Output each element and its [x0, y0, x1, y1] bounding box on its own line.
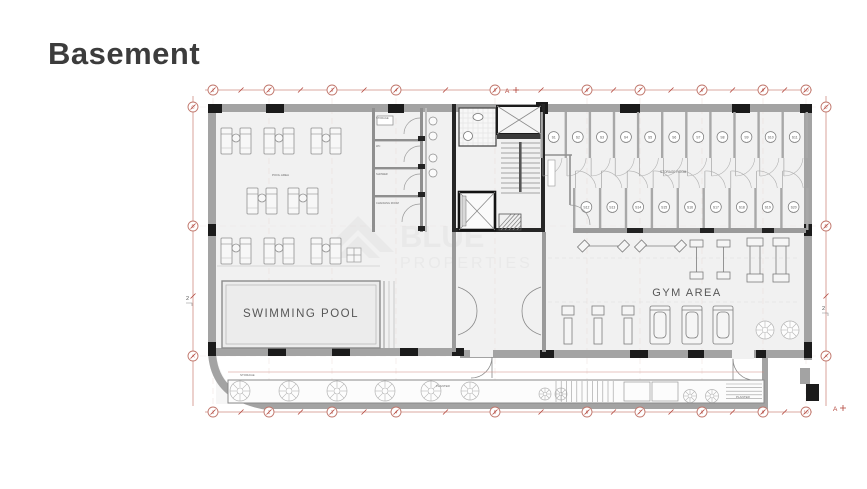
storage-unit-number: S19 — [765, 205, 771, 209]
storage-room-label: STORAGE ROOM — [660, 170, 687, 174]
gym-area-label: GYM AREA — [652, 287, 721, 299]
plant-icon — [706, 390, 719, 403]
storage-unit-number: S17 — [713, 205, 719, 209]
room-label-changing: CHANGING ROOM — [376, 201, 399, 205]
plant-icon — [684, 390, 697, 403]
core-bathroom — [459, 108, 496, 146]
planter-label-left: PLANTER — [436, 384, 451, 388]
treadmill-icons — [650, 306, 733, 344]
section-marker-bottom-arrow — [840, 405, 846, 411]
storage-unit-number: S12 — [583, 205, 589, 209]
page: Basement BLUE PROPERTIES — [0, 0, 867, 489]
storage-unit-number: S4 — [624, 135, 628, 139]
storage-unit-number: S5 — [648, 135, 652, 139]
side-marker-left-bracket — [186, 303, 192, 306]
storage-unit-number: S11 — [792, 135, 798, 139]
storage-unit-number: S2 — [576, 135, 580, 139]
storage-unit-number: S6 — [672, 135, 676, 139]
section-marker-top: A — [505, 88, 510, 95]
plant-icon — [539, 388, 551, 400]
storage-unit-number: S9 — [744, 135, 748, 139]
storage-unit-number: S3 — [600, 135, 604, 139]
storage-unit-number: S20 — [791, 205, 797, 209]
swimming-pool-label: SWIMMING POOL — [243, 308, 359, 320]
storage-corner-label: STORAGE — [240, 373, 255, 377]
room-label-shower: SHOWER — [376, 172, 388, 176]
pool-area-label: POOL AREA — [272, 173, 289, 177]
section-marker-bottom: A — [833, 406, 838, 413]
side-marker-left: 2 — [186, 296, 189, 302]
plant-icon — [756, 321, 774, 339]
storage-unit-number: S13 — [609, 205, 615, 209]
storage-unit-number: S1 — [552, 135, 556, 139]
storage-unit-number: S15 — [661, 205, 667, 209]
planter-label-right: PLANTER — [736, 395, 751, 399]
section-marker-top-arrow — [513, 87, 519, 93]
plant-icon — [781, 321, 799, 339]
side-table — [347, 248, 361, 262]
side-marker-right: 2 — [822, 306, 825, 312]
room-label-wc: WC — [376, 144, 380, 148]
floor-plan: BLUE PROPERTIES — [0, 0, 867, 489]
storage-unit-number: S18 — [739, 205, 745, 209]
plant-icon — [375, 381, 395, 401]
room-label-storage: STORAGE — [376, 116, 389, 120]
storage-unit-number: S7 — [696, 135, 700, 139]
plant-icon — [327, 381, 347, 401]
watermark-brand-bottom: PROPERTIES — [400, 255, 533, 272]
storage-unit-number: S16 — [687, 205, 693, 209]
planter-strip: PLANTER PLANTER STORAGE — [228, 372, 764, 403]
plant-icon — [230, 381, 250, 401]
storage-unit-number: S14 — [635, 205, 641, 209]
side-marker-right-bracket — [822, 313, 828, 316]
plant-icon — [461, 382, 479, 400]
storage-unit-number: S8 — [720, 135, 724, 139]
storage-unit-number: S10 — [768, 135, 774, 139]
plant-icon — [279, 381, 299, 401]
